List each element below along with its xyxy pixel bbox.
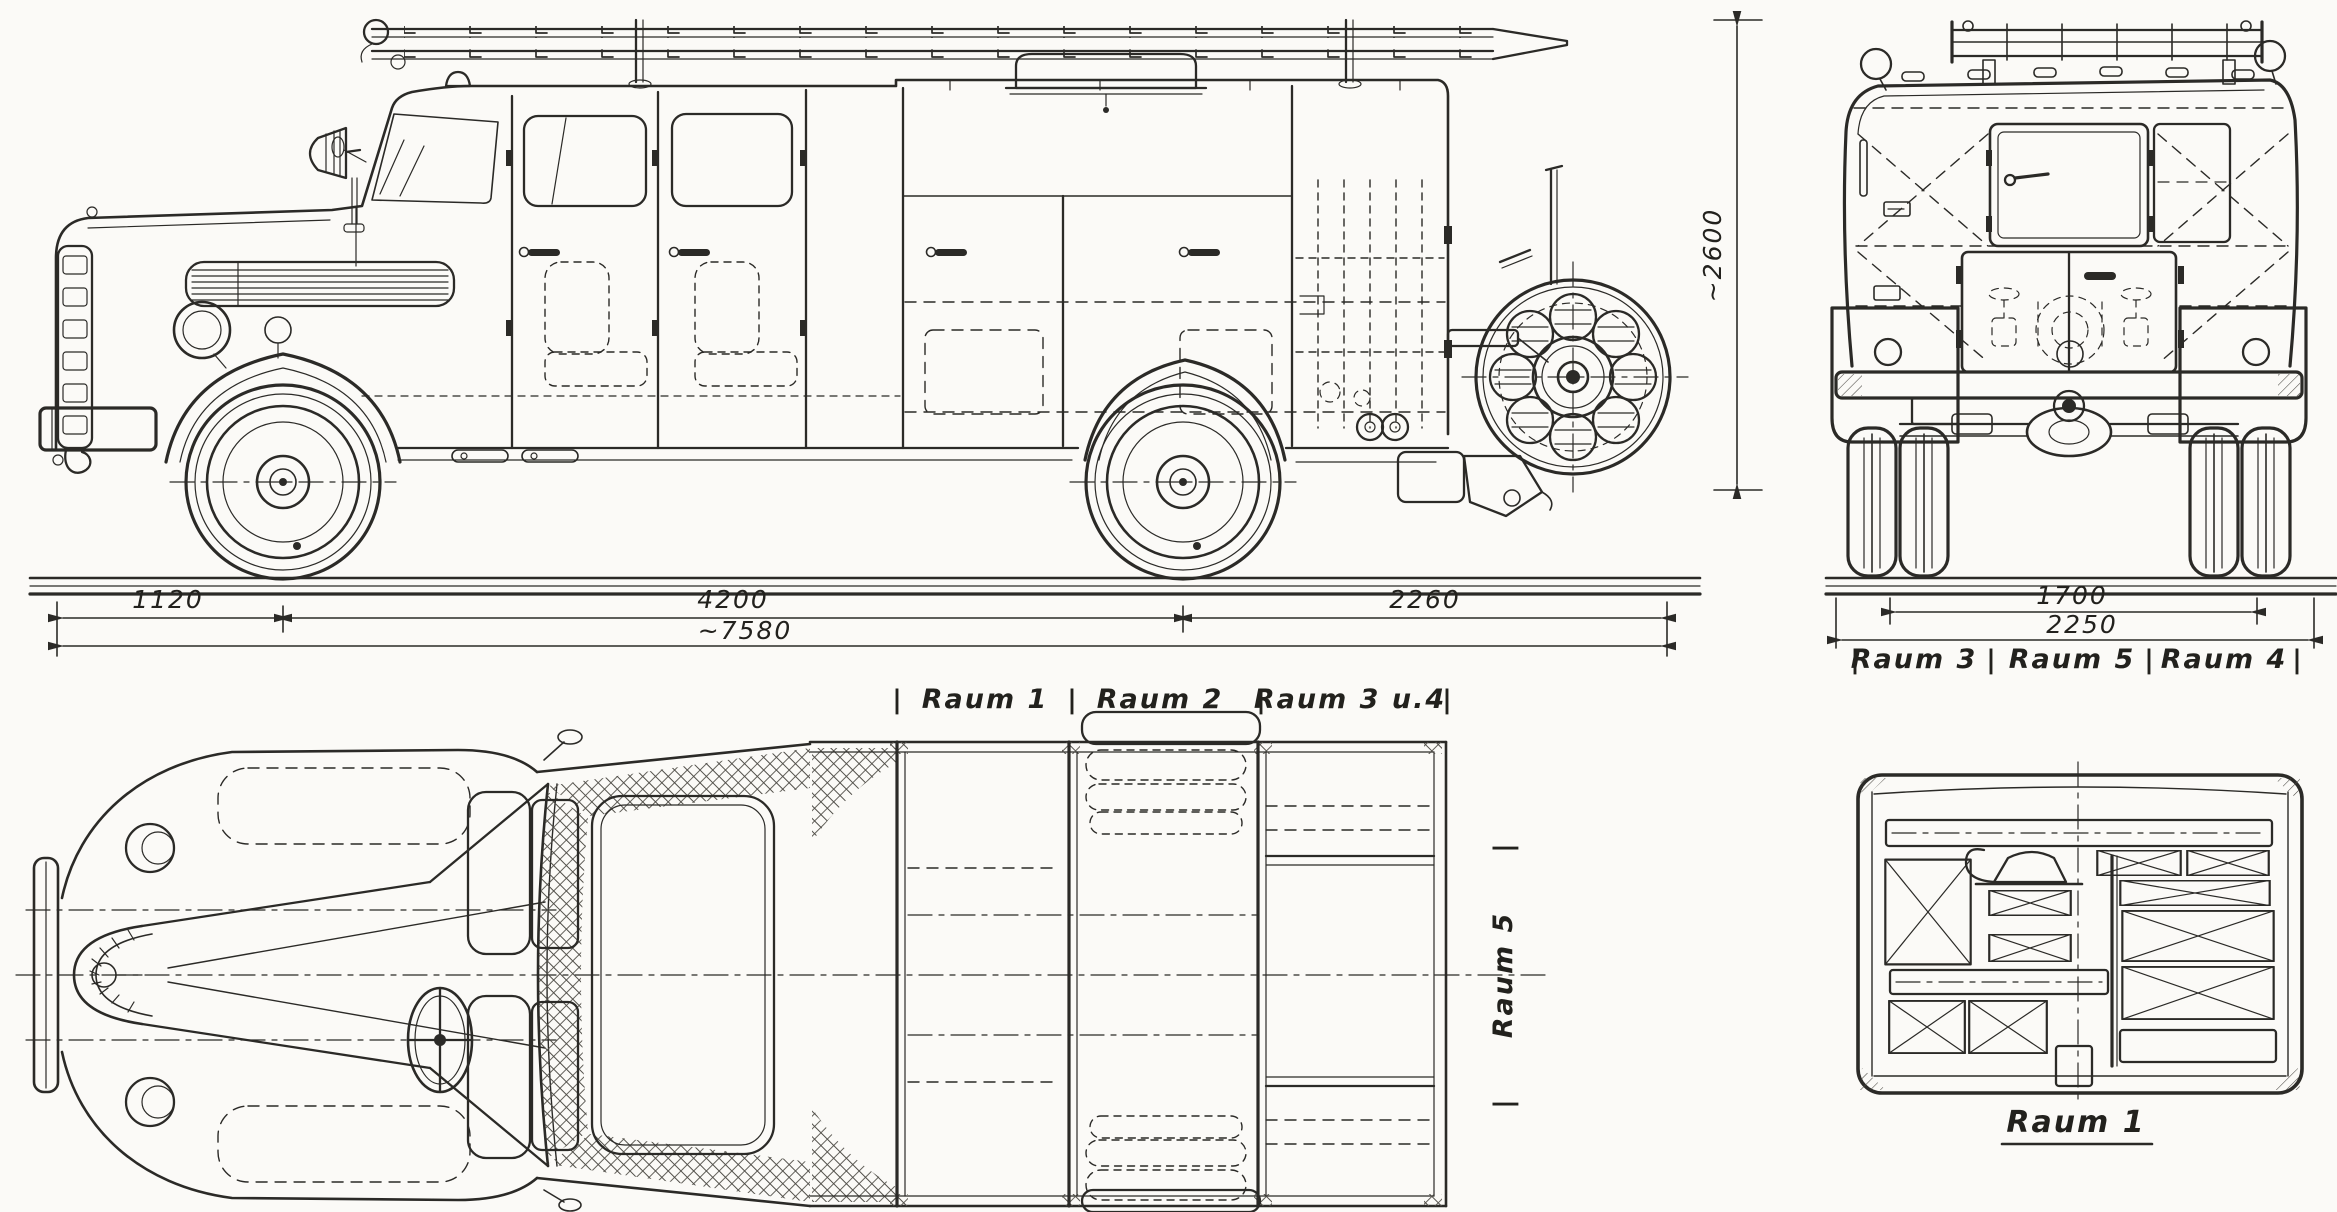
dim-overall-length-label: ~7580: [698, 616, 793, 645]
centerlines: [16, 910, 1548, 1040]
detail-title-label: Raum 1: [2006, 1105, 2145, 1140]
front-fender: [166, 354, 400, 462]
detail-view-raum1: Raum 1: [1858, 762, 2302, 1144]
side-view: 1120 4200 2260 ~7580 ~2600: [30, 20, 1762, 656]
compartment-label-raum3: Raum 3: [1851, 644, 1978, 675]
separator-mark: |: [1067, 685, 1079, 715]
crossed-locker-box: [1885, 860, 1970, 965]
cab-doors: [506, 88, 903, 448]
locker-mid-shelf: [1890, 970, 2108, 994]
plan-fenders: [62, 730, 582, 1211]
dim-overall-width-label: 2250: [2046, 610, 2118, 639]
rear-compartment-row: | Raum 3 | Raum 5 | Raum 4 |: [1850, 644, 2304, 675]
headlight: [174, 302, 230, 368]
locker-top-shelf: [1886, 820, 2272, 846]
front-grille: [58, 246, 92, 448]
pump-bay-doors: [1956, 252, 2184, 372]
door-handles: [520, 248, 1221, 257]
hose-reel-wheel: [1448, 166, 1688, 492]
width-dimensions: 1700 2250: [1836, 581, 2314, 648]
crossed-locker-box: [2187, 850, 2268, 875]
length-dimensions: 1120 4200 2260 ~7580: [57, 585, 1667, 656]
separator-mark: |: [1489, 1097, 1519, 1109]
locker-bottom-right: [2120, 1030, 2276, 1062]
compartment-label-raum5-side: Raum 5: [1488, 912, 1519, 1039]
height-dimension: ~2600: [1698, 20, 1762, 490]
dim-wheelbase-label: 4200: [697, 585, 769, 614]
rear-ladder-stack: [1952, 21, 2262, 84]
compartment-label-raum5: Raum 5: [2009, 644, 2136, 675]
blueprint-page: 1120 4200 2260 ~7580 ~2600: [0, 0, 2337, 1212]
front-wheel: [170, 385, 396, 579]
crossed-locker-box: [2122, 967, 2273, 1019]
dim-front-overhang-label: 1120: [132, 585, 204, 614]
separator-mark: |: [2144, 645, 2156, 675]
rear-axle: [1900, 391, 2238, 456]
dim-inner-width-label: 1700: [2036, 581, 2108, 610]
crossed-locker-box: [1989, 934, 2070, 961]
crossed-locker-box: [2097, 850, 2180, 875]
plan-compartment-row: | Raum 1 | Raum 2 | Raum 3 u.4 |: [892, 684, 1454, 715]
crossed-locker-box: [1989, 890, 2070, 915]
separator-mark: |: [2292, 645, 2304, 675]
locker-center-bottom: [2056, 1046, 2092, 1086]
top-view: | Raum 1 | Raum 2 | Raum 3 u.4 | | Raum …: [16, 684, 1548, 1212]
roof-siren: [1006, 54, 1206, 113]
rear-fender: [1085, 360, 1285, 460]
compartment-label-raum1: Raum 1: [922, 684, 1049, 715]
dim-overall-height-label: ~2600: [1698, 208, 1727, 303]
plan-raum5-side-label: | Raum 5 |: [1488, 841, 1519, 1109]
pump-outlet: [1357, 414, 1552, 516]
crossed-locker-box: [2122, 911, 2273, 961]
rear-bumper: [1836, 372, 2302, 424]
roof-ladder: [361, 20, 1567, 88]
detail-title: Raum 1: [2002, 1105, 2152, 1144]
running-board: [398, 448, 1448, 462]
horn: [265, 317, 291, 358]
rear-equipment-compartment: [1296, 180, 1452, 428]
compartment-label-raum4: Raum 4: [2161, 644, 2288, 675]
roof-tabs: [1082, 712, 1260, 1212]
rear-view: 1700 2250 | Raum 3 | Raum 5 | Raum 4 |: [1826, 21, 2336, 675]
helmet-shape: [1966, 849, 2082, 884]
rear-wheels: [1848, 428, 2290, 576]
compartment-label-raum2: Raum 2: [1097, 684, 1224, 715]
cab-roof-beacon: [446, 72, 470, 86]
body-panels: [903, 80, 1445, 446]
windshield: [372, 114, 498, 203]
separator-mark: |: [892, 685, 904, 715]
compartment-label-raum3u4: Raum 3 u.4: [1254, 684, 1446, 715]
separator-mark: |: [1442, 685, 1454, 715]
separator-mark: |: [1489, 841, 1519, 853]
crossed-locker-box: [2120, 880, 2269, 905]
rear-upper-doors: [1986, 124, 2230, 246]
hood-louver-vent: [186, 262, 454, 306]
separator-mark: |: [1986, 645, 1998, 675]
dim-rear-overhang-label: 2260: [1389, 585, 1461, 614]
crossed-locker-box: [1969, 1001, 2047, 1053]
crossed-locker-box: [1889, 1001, 1965, 1053]
blueprint-canvas: 1120 4200 2260 ~7580 ~2600: [0, 0, 2337, 1212]
steering-wheel: [408, 988, 472, 1092]
